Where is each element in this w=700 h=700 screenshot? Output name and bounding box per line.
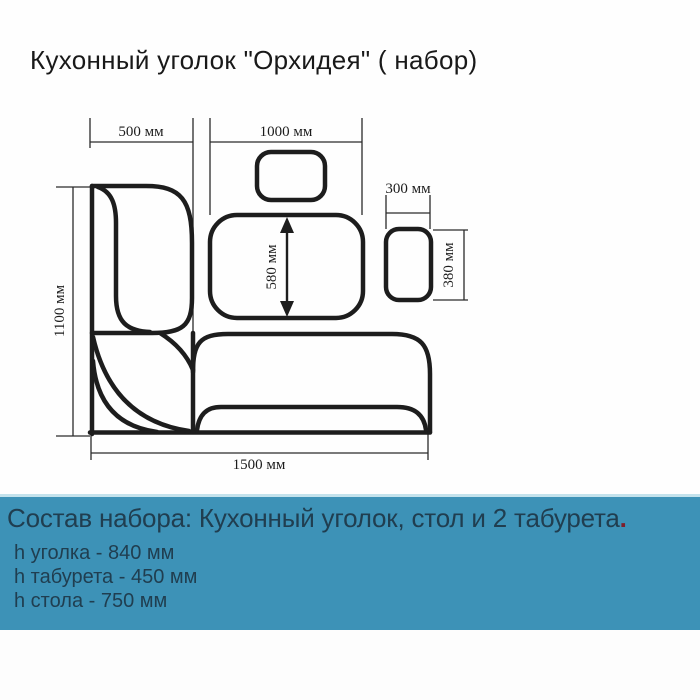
bench-junction-petal	[160, 333, 193, 370]
label-1100mm: 1100 мм	[52, 284, 68, 337]
height-specs: h уголка - 840 мм h табурета - 450 мм h …	[14, 541, 700, 613]
banner-heading: Состав набора: Кухонный уголок, стол и 2…	[7, 503, 700, 534]
stool-right-outline	[386, 229, 431, 300]
bottom-whitespace	[0, 630, 700, 700]
stool-top-outline	[257, 152, 325, 200]
label-580mm: 580 мм	[264, 244, 280, 290]
label-300mm: 300 мм	[385, 181, 431, 197]
furniture-outlines	[90, 152, 431, 434]
corner-seat-front-edge	[93, 337, 189, 431]
label-500mm: 500 мм	[118, 124, 164, 140]
table-depth-arrow	[280, 217, 294, 317]
dim-300-ticks	[386, 195, 430, 229]
corner-bench-backrest-outline	[92, 186, 192, 333]
set-contents-banner: Состав набора: Кухонный уголок, стол и 2…	[0, 494, 700, 630]
banner-heading-text: Состав набора: Кухонный уголок, стол и 2…	[7, 503, 620, 533]
label-380mm: 380 мм	[441, 242, 457, 288]
long-bench-outline	[193, 334, 430, 432]
furniture-dimension-diagram: 500 мм 1000 мм 300 мм 1500 мм 1100 мм 58…	[0, 0, 700, 500]
arrowhead-up-icon	[280, 217, 294, 233]
long-bench-seat-line	[197, 407, 426, 430]
corner-bench-backrest-cushion	[98, 187, 150, 332]
spec-stool-height: h табурета - 450 мм	[14, 565, 700, 589]
dim-500-ticks	[90, 118, 193, 334]
spec-corner-height: h уголка - 840 мм	[14, 541, 700, 565]
label-1000mm: 1000 мм	[260, 124, 313, 140]
page: Кухонный уголок "Орхидея" ( набор)	[0, 0, 700, 700]
label-1500mm: 1500 мм	[233, 457, 286, 473]
arrowhead-down-icon	[280, 301, 294, 317]
spec-table-height: h стола - 750 мм	[14, 589, 700, 613]
dim-1500-ticks	[91, 433, 428, 460]
banner-heading-period: .	[620, 503, 627, 533]
